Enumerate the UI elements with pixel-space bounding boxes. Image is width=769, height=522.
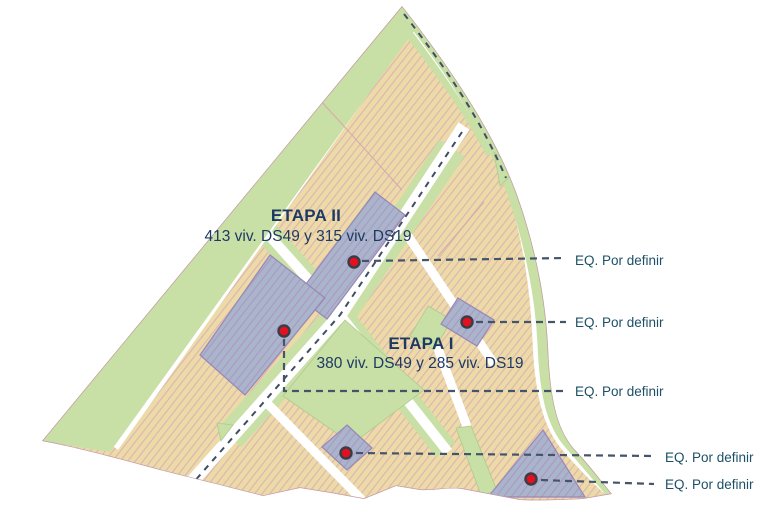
eq-marker-dot xyxy=(462,317,473,328)
eq-label: EQ. Por definir xyxy=(575,252,664,270)
eq-label: EQ. Por definir xyxy=(665,449,754,467)
eq-label: EQ. Por definir xyxy=(575,383,664,401)
etapa2-detail: 413 viv. DS49 y 315 viv. DS19 xyxy=(188,228,428,246)
etapa1-detail: 380 viv. DS49 y 285 viv. DS19 xyxy=(300,355,540,373)
eq-label: EQ. Por definir xyxy=(575,314,664,332)
eq-marker-dot xyxy=(526,474,537,485)
eq-marker-dot xyxy=(349,257,360,268)
site-plan: ETAPA II 413 viv. DS49 y 315 viv. DS19 E… xyxy=(0,0,769,522)
eq-marker-dot xyxy=(279,326,290,337)
etapa1-title: ETAPA I xyxy=(341,334,501,354)
land-layers xyxy=(42,4,612,500)
eq-label: EQ. Por definir xyxy=(665,476,754,494)
eq-marker-dot xyxy=(341,448,352,459)
etapa2-title: ETAPA II xyxy=(226,206,386,226)
